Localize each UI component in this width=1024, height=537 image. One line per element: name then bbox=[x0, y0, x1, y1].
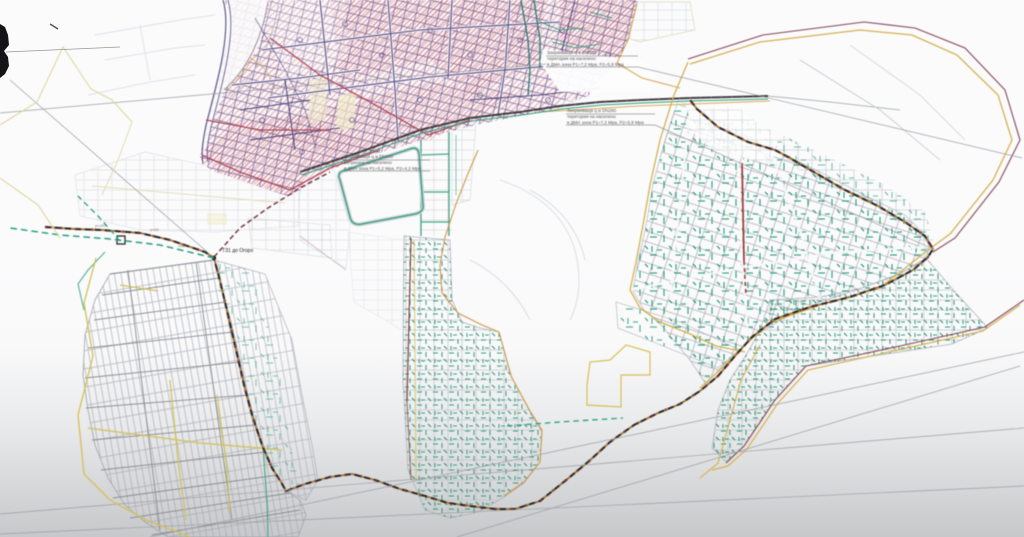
svg-text:територия на населено: територия на населено bbox=[567, 114, 616, 119]
svg-text:ТЗ1 до Огоро: ТЗ1 до Огоро bbox=[222, 248, 253, 254]
svg-text:Захранваща ц-а DN200: Захранваща ц-а DN200 bbox=[344, 154, 394, 159]
svg-text:в ДМА зона P1=5,2 Mpa, P2=4,2: в ДМА зона P1=5,2 Mpa, P2=4,2 Mpa bbox=[344, 166, 421, 171]
svg-text:в ДМА зона P1=7,2 Mpa, P2=5,9: в ДМА зона P1=7,2 Mpa, P2=5,9 Mpa bbox=[567, 120, 644, 125]
svg-text:в ДМА зона P1=7,2 Mpa, P2=5,8: в ДМА зона P1=7,2 Mpa, P2=5,8 Mpa bbox=[547, 62, 624, 67]
svg-text:Захранваща ц-а DN280: Захранваща ц-а DN280 bbox=[567, 108, 617, 113]
svg-text:съшл: съшл bbox=[178, 244, 187, 248]
svg-text:територия на населено: територия на населено bbox=[547, 56, 596, 61]
svg-text:уч.240: уч.240 bbox=[95, 224, 105, 228]
svg-text:Захранваща ц-а DN300: Захранваща ц-а DN300 bbox=[547, 50, 597, 55]
svg-text:вътрешна на населено: вътрешна на населено bbox=[344, 160, 392, 165]
svg-text:уч.БК: уч.БК bbox=[150, 228, 160, 232]
